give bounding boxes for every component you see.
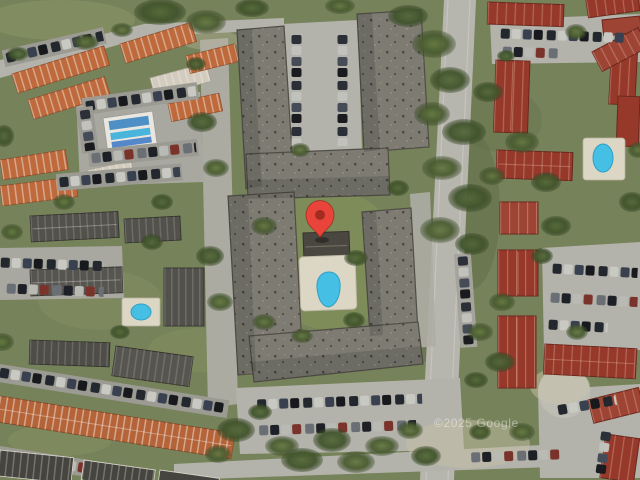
tree [111,23,133,37]
tree [205,445,231,463]
tree [448,184,492,212]
tree [485,352,515,372]
tree [473,82,503,102]
satellite-map-view[interactable]: ©2025 Google [0,0,640,480]
tree [455,233,489,255]
tree [248,404,272,420]
tree [479,167,505,185]
tree [388,5,428,27]
tree [541,216,571,236]
red-roof-building [498,316,536,388]
courtyard-area [299,231,357,311]
gray-slab-building [164,268,204,326]
tree [281,448,323,472]
parking-row [290,34,303,146]
tree [344,250,368,266]
tree [343,312,365,328]
gray-slab-building [30,211,119,242]
tree [422,156,462,180]
tree [186,10,226,34]
parking-row [336,34,349,146]
gray-slab-building [29,340,110,367]
tree [217,418,255,442]
midleft-pool-area [122,298,160,326]
tree [489,293,515,311]
tree [291,329,313,343]
swimming-pool [131,304,151,320]
tree [196,246,224,266]
swimming-pool [593,144,613,172]
tree [252,314,276,330]
tree [251,217,277,235]
tree [566,324,588,340]
map-canvas[interactable]: ©2025 Google [0,0,640,480]
tree [464,372,488,388]
tree [110,325,130,339]
tree [313,428,351,452]
tree [387,180,409,196]
tree [141,234,163,250]
map-watermark: ©2025 Google [434,416,519,430]
tree [505,131,539,153]
pin-shadow [315,237,329,243]
tree [365,436,399,456]
tree [565,24,587,40]
tree [7,47,29,61]
tree [207,293,233,311]
tree [187,112,217,132]
tree [397,421,423,439]
tree [53,194,75,210]
tree [73,34,99,50]
tree [1,224,23,240]
tree [151,194,173,210]
tree [412,30,456,58]
east-pool-area [583,138,625,180]
tree [442,119,486,145]
tree [337,451,375,473]
tree [497,50,515,62]
tree [186,57,206,71]
red-roof-building [500,202,538,234]
tree [467,323,493,341]
pin-inner-dot [315,210,325,220]
tree [411,446,441,466]
tree [430,67,470,93]
tree [414,102,450,126]
tree [531,248,553,264]
red-roof-building [487,2,564,27]
tree [203,159,229,177]
tree [420,217,460,243]
tree [134,0,186,25]
tree [290,143,310,157]
red-roof-building [543,344,636,379]
tree [531,172,561,192]
